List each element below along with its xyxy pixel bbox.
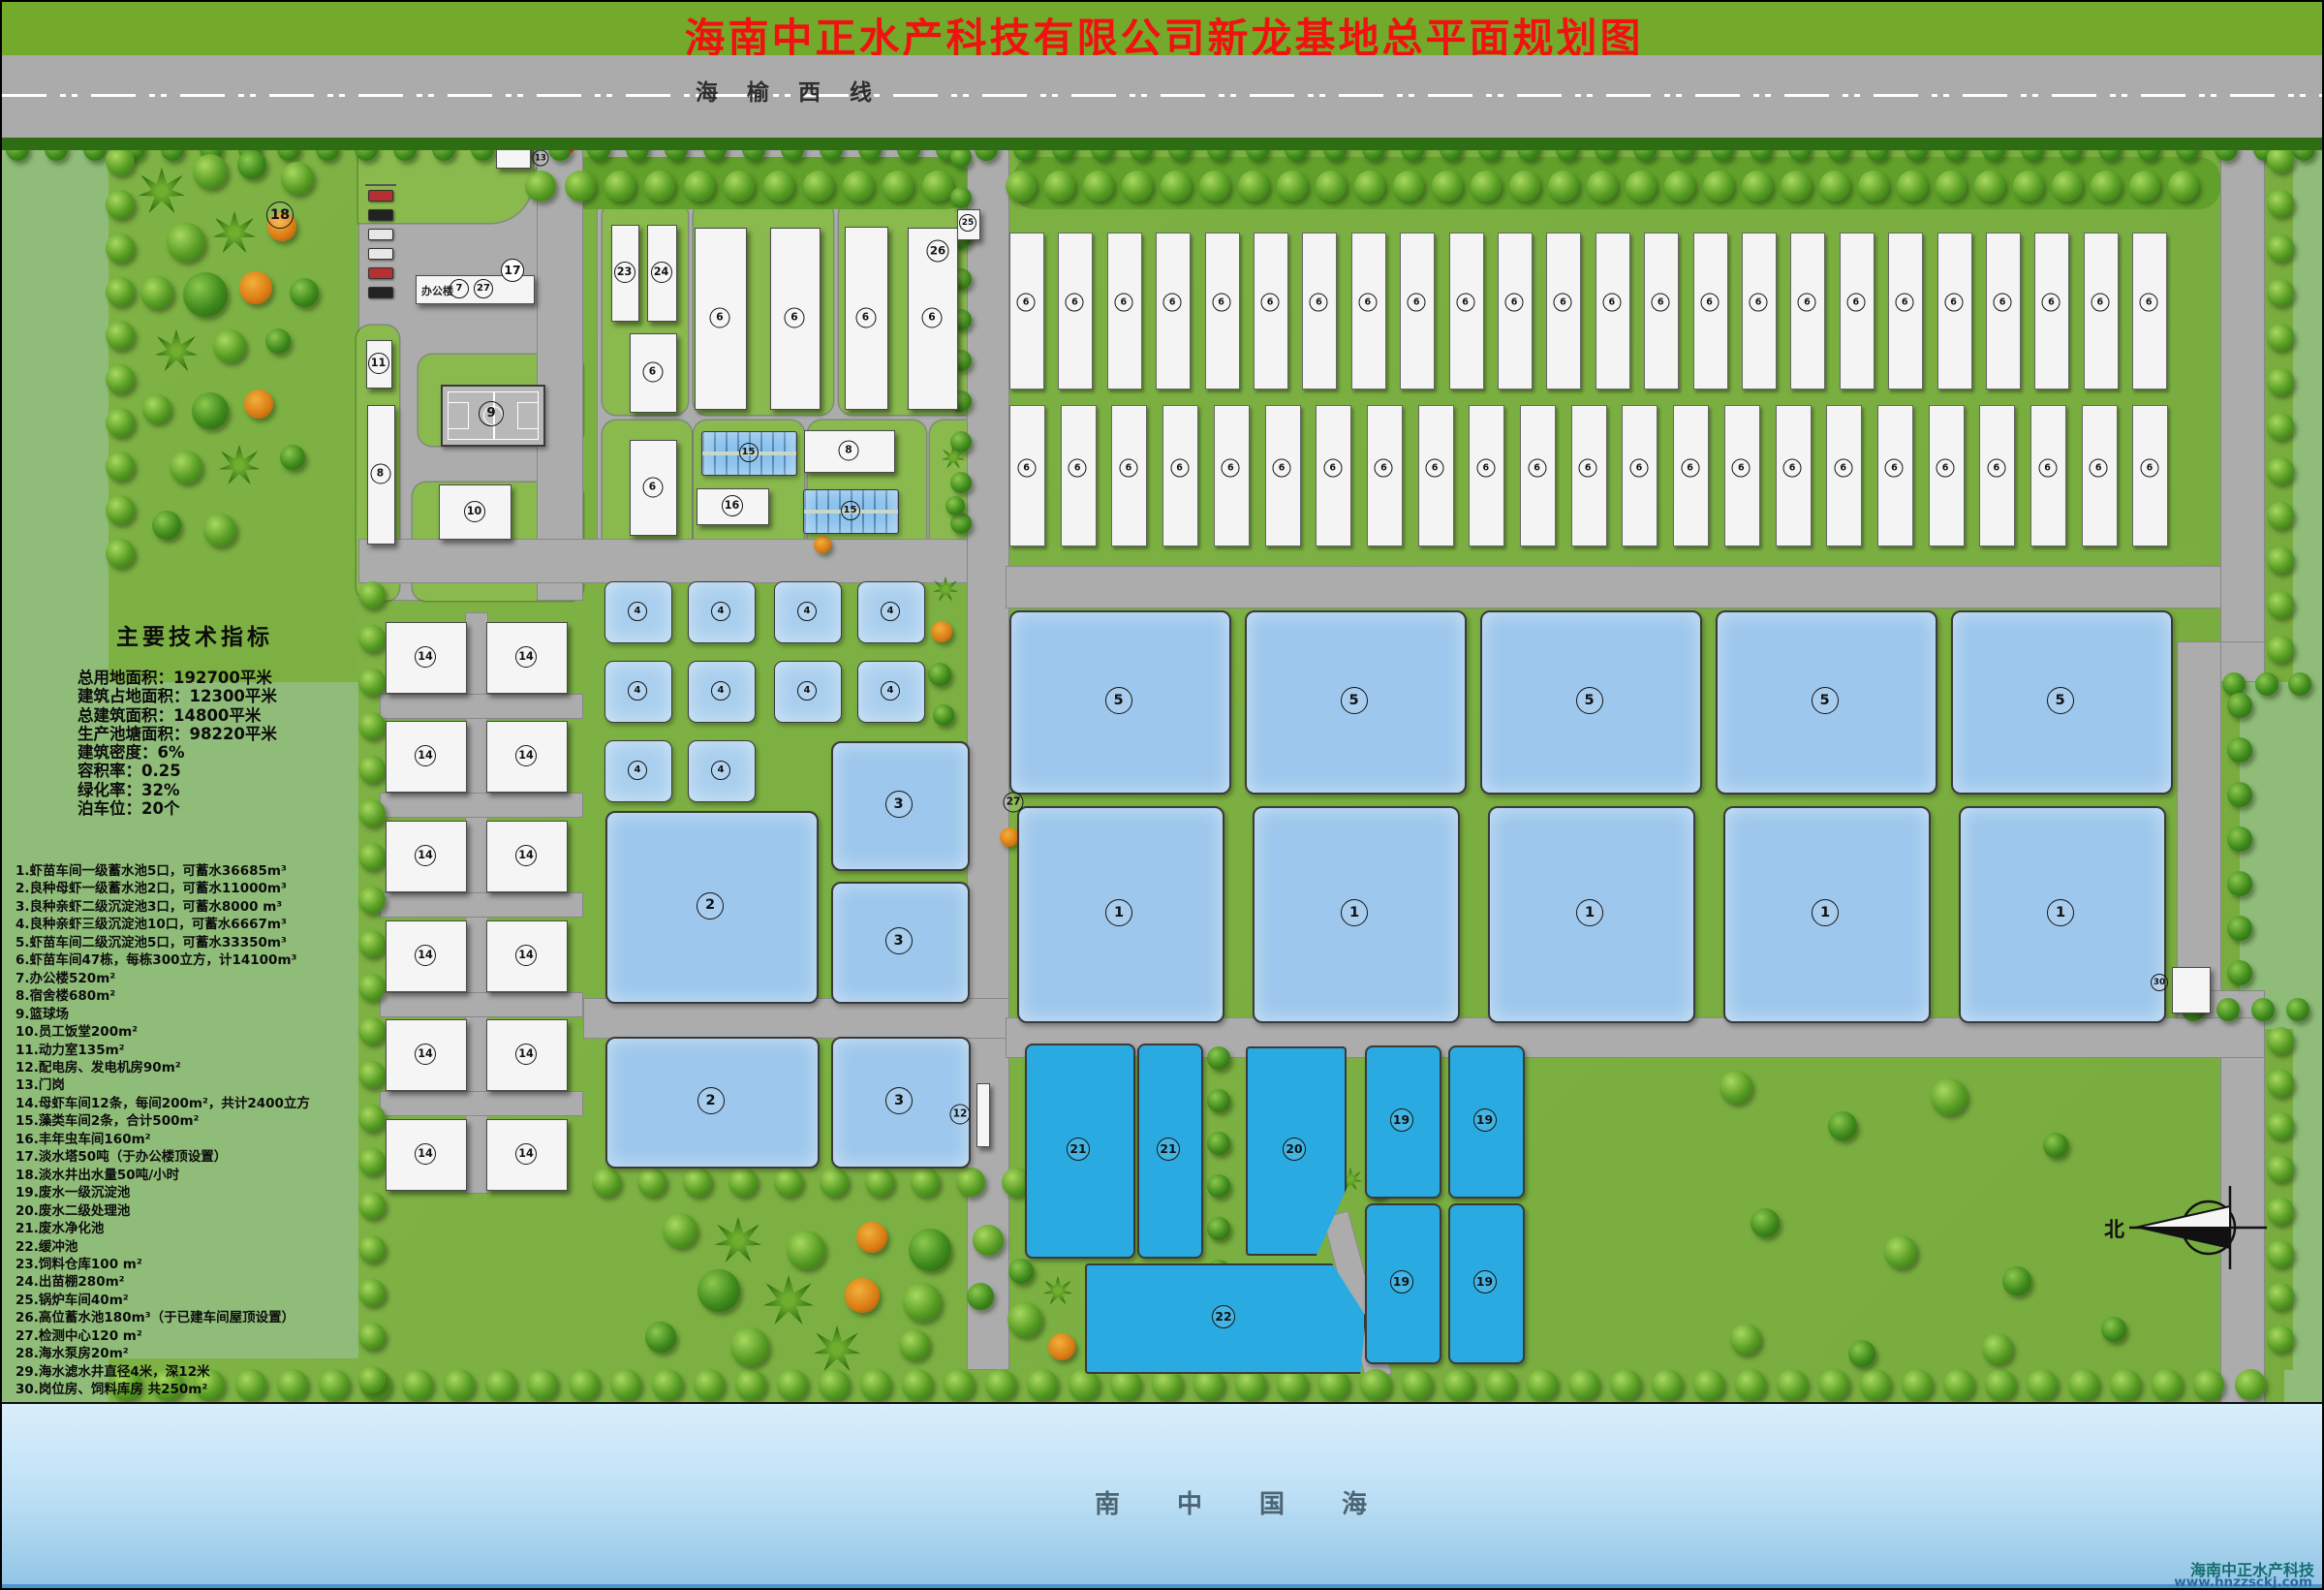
tree-icon — [2052, 171, 2083, 202]
tree-icon — [106, 190, 135, 219]
road-segment — [1006, 566, 2265, 608]
tree-icon — [2267, 234, 2294, 262]
tree-icon — [865, 1168, 894, 1197]
legend-panel: 1.虾苗车间一级蓄水池5口，可蓄水36685m³2.良种母虾一级蓄水池2口，可蓄… — [15, 862, 376, 1399]
legend-item: 17.淡水塔50吨（于办公楼顶设置） — [15, 1148, 376, 1166]
tree-icon — [950, 513, 972, 534]
tree-icon — [1008, 1259, 1034, 1284]
tree-icon — [106, 234, 135, 263]
tree-icon — [2152, 1369, 2183, 1400]
tree-icon — [2227, 737, 2252, 763]
tree-icon — [1044, 171, 1075, 202]
circled-label-16: 16 — [722, 495, 743, 516]
tree-icon — [1161, 171, 1192, 202]
tech-indicator-line: 生产池塘面积：98220平米 — [77, 725, 397, 743]
tree-icon — [106, 321, 135, 350]
tree-icon — [860, 1369, 891, 1400]
tree-icon — [697, 1269, 740, 1312]
road-segment — [380, 992, 583, 1017]
circled-label-4: 4 — [797, 602, 817, 621]
tree-icon — [2267, 636, 2294, 663]
tree-icon — [142, 394, 171, 423]
circled-label-6: 6 — [1426, 458, 1444, 477]
circled-label-6: 6 — [1579, 458, 1597, 477]
tree-icon — [1360, 1369, 1391, 1400]
tree-icon — [1848, 1340, 1875, 1367]
circled-label-4: 4 — [628, 681, 647, 701]
tree-icon — [1943, 1369, 1974, 1400]
circled-label-6: 6 — [1273, 458, 1291, 477]
circled-label-22: 22 — [1212, 1305, 1235, 1328]
tree-icon — [213, 329, 246, 362]
tree-icon — [565, 171, 596, 202]
legend-item: 5.虾苗车间二级沉淀池5口，可蓄水33350m³ — [15, 934, 376, 951]
tree-icon — [1626, 171, 1657, 202]
tree-icon — [2043, 1133, 2068, 1158]
legend-item: 24.出苗棚280m² — [15, 1273, 376, 1291]
tree-icon — [1432, 171, 1463, 202]
tree-icon — [2251, 998, 2275, 1021]
tree-icon — [694, 1369, 725, 1400]
tree-icon — [933, 704, 954, 726]
site-plan-canvas: 5555511111444444444423323151521212019191… — [0, 0, 2324, 1590]
tree-icon — [1936, 171, 1967, 202]
circled-label-1: 1 — [1812, 899, 1839, 926]
tree-icon — [2267, 413, 2294, 440]
tree-icon — [527, 1369, 558, 1400]
car — [368, 190, 393, 202]
legend-item: 19.废水一级沉淀池 — [15, 1184, 376, 1201]
circled-label-9: 9 — [479, 401, 504, 426]
circled-label-6: 6 — [2140, 458, 2158, 477]
tech-indicators-heading: 主要技术指标 — [116, 618, 397, 651]
circled-label-14: 14 — [415, 1143, 436, 1165]
circled-label-13: 13 — [533, 150, 549, 167]
flower-shrub — [814, 536, 831, 553]
circled-label-6: 6 — [1069, 458, 1087, 477]
circled-label-8: 8 — [370, 464, 390, 484]
tree-icon — [903, 1283, 942, 1322]
circled-label-7: 7 — [449, 279, 469, 298]
road-segment — [380, 793, 583, 818]
circled-label-14: 14 — [415, 845, 436, 866]
circled-label-6: 6 — [2091, 294, 2109, 312]
circled-label-6: 6 — [1375, 458, 1393, 477]
car — [368, 248, 393, 260]
tree-icon — [985, 1369, 1016, 1400]
sea-area: 南中国海 海南中正水产科技 www.hnzzsckj.com — [2, 1402, 2324, 1590]
legend-item: 30.岗位房、饲料库房 共250m² — [15, 1381, 376, 1398]
legend-item: 13.门岗 — [15, 1076, 376, 1094]
legend-item: 10.员工饭堂200m² — [15, 1023, 376, 1041]
tree-icon — [2267, 1325, 2294, 1353]
legend-item: 15.藻类车间2条，合计500m² — [15, 1112, 376, 1130]
legend-item: 16.丰年虫车间160m² — [15, 1131, 376, 1148]
circled-label-6: 6 — [1323, 458, 1342, 477]
tree-icon — [820, 1168, 849, 1197]
circled-label-27: 27 — [474, 279, 493, 298]
tree-icon — [203, 514, 236, 546]
tree-icon — [899, 1329, 930, 1360]
tree-icon — [1693, 1369, 1724, 1400]
circled-label-6: 6 — [710, 308, 730, 328]
tree-icon — [922, 171, 953, 202]
road-segment — [380, 694, 583, 719]
tech-indicator-line: 建筑密度：6% — [77, 743, 397, 762]
tree-icon — [2216, 998, 2240, 1021]
circled-label-2: 2 — [697, 892, 724, 920]
tree-icon — [928, 663, 951, 686]
circled-label-14: 14 — [415, 1044, 436, 1065]
circled-label-17: 17 — [501, 259, 524, 282]
tree-icon — [2101, 1317, 2126, 1342]
circled-label-24: 24 — [651, 262, 672, 283]
legend-item: 22.缓冲池 — [15, 1238, 376, 1256]
legend-item: 2.良种母虾一级蓄水池2口，可蓄水11000m³ — [15, 880, 376, 897]
tree-icon — [902, 1369, 933, 1400]
circled-label-6: 6 — [1554, 294, 1572, 312]
tree-icon — [1818, 1369, 1849, 1400]
tree-icon — [787, 1231, 825, 1269]
tree-icon — [1652, 1369, 1683, 1400]
roadside-hedge — [2, 138, 2324, 150]
circled-label-5: 5 — [1812, 687, 1839, 714]
circled-label-19: 19 — [1390, 1108, 1413, 1132]
tree-icon — [1902, 1369, 1933, 1400]
tree-icon — [1527, 1369, 1558, 1400]
tree-icon — [1860, 1369, 1891, 1400]
tree-icon — [2227, 826, 2252, 852]
tech-indicator-line: 绿化率：32% — [77, 781, 397, 799]
tree-icon — [170, 451, 202, 483]
tech-indicator-line: 总用地面积：192700平米 — [77, 669, 397, 687]
circled-label-6: 6 — [1798, 294, 1816, 312]
tree-icon — [2068, 1369, 2099, 1400]
tree-icon — [819, 1369, 850, 1400]
tree-icon — [2013, 171, 2044, 202]
tree-icon — [652, 1369, 683, 1400]
tree-icon — [281, 162, 314, 195]
circled-label-1: 1 — [2047, 899, 2074, 926]
tree-icon — [2267, 591, 2294, 618]
court-key — [517, 402, 539, 429]
tree-icon — [909, 1229, 951, 1271]
circled-label-3: 3 — [885, 791, 913, 818]
circled-label-25: 25 — [959, 214, 976, 232]
legend-item: 23.饲料仓库100 m² — [15, 1256, 376, 1273]
tree-icon — [1485, 1369, 1516, 1400]
tree-icon — [525, 171, 556, 202]
tree-icon — [183, 272, 228, 317]
tree-icon — [967, 1283, 994, 1310]
legend-item: 9.篮球场 — [15, 1006, 376, 1023]
circled-label-6: 6 — [1066, 294, 1084, 312]
tree-icon — [730, 1327, 769, 1366]
court-key — [448, 402, 469, 429]
tree-icon — [1568, 1369, 1599, 1400]
circled-label-6: 6 — [1408, 294, 1426, 312]
legend-item: 4.良种亲虾三级沉淀池10口，可蓄水6667m³ — [15, 916, 376, 933]
tree-icon — [1027, 1369, 1058, 1400]
tree-icon — [1985, 1369, 2016, 1400]
tree-icon — [106, 495, 135, 524]
circled-label-19: 19 — [1473, 1270, 1497, 1294]
tree-icon — [280, 445, 305, 470]
circled-label-19: 19 — [1390, 1270, 1413, 1294]
building — [2172, 967, 2211, 1013]
legend-item: 3.良种亲虾二级沉淀池3口，可蓄水8000 m³ — [15, 898, 376, 916]
tree-icon — [803, 171, 834, 202]
tree-icon — [728, 1168, 758, 1197]
tree-icon — [1509, 171, 1540, 202]
tree-icon — [2288, 672, 2311, 696]
tree-icon — [735, 1369, 766, 1400]
parking-strip — [365, 184, 396, 186]
circled-label-11: 11 — [368, 353, 389, 374]
tree-icon — [1720, 1071, 1752, 1104]
legend-item: 18.淡水井出水量50吨/小时 — [15, 1167, 376, 1184]
sea-deep-band — [2, 1584, 2324, 1590]
circled-label-3: 3 — [885, 1087, 913, 1114]
circled-label-4: 4 — [711, 761, 730, 780]
legend-item: 8.宿舍楼680m² — [15, 987, 376, 1005]
circled-label-6: 6 — [785, 308, 805, 328]
tree-icon — [1402, 1369, 1433, 1400]
tech-indicators-panel: 主要技术指标 总用地面积：192700平米建筑占地面积：12300平米总建筑面积… — [77, 618, 397, 818]
circled-label-6: 6 — [1261, 294, 1280, 312]
road-segment — [583, 998, 1009, 1039]
tree-icon — [1316, 171, 1347, 202]
tree-icon — [1664, 171, 1695, 202]
circled-label-2: 2 — [697, 1087, 725, 1114]
tree-icon — [1982, 1333, 2013, 1364]
tree-icon — [1207, 1132, 1230, 1155]
flower-shrub — [856, 1222, 887, 1253]
tech-indicator-line: 建筑占地面积：12300平米 — [77, 687, 397, 705]
car — [368, 209, 393, 221]
circled-label-6: 6 — [855, 307, 876, 327]
circled-label-6: 6 — [1750, 294, 1768, 312]
circled-label-6: 6 — [1994, 294, 2012, 312]
circled-label-21: 21 — [1157, 1138, 1180, 1161]
tree-icon — [1751, 1208, 1780, 1237]
car — [368, 267, 393, 279]
circled-label-21: 21 — [1067, 1138, 1090, 1161]
tech-indicator-line: 总建筑面积：14800平米 — [77, 706, 397, 725]
road-name: 海榆西线 — [696, 74, 901, 107]
road-segment — [2220, 138, 2265, 682]
tree-icon — [1777, 1369, 1808, 1400]
tree-icon — [2193, 1369, 2224, 1400]
tree-icon — [956, 1168, 985, 1197]
tree-icon — [1471, 171, 1502, 202]
watermark-url: www.hnzzsckj.com — [2174, 1574, 2312, 1590]
legend-item: 25.锅炉车间40m² — [15, 1292, 376, 1309]
legend-item: 28.海水泵房20m² — [15, 1345, 376, 1362]
tree-icon — [2267, 368, 2294, 395]
circled-label-18: 18 — [266, 202, 294, 229]
circled-label-5: 5 — [1341, 687, 1368, 714]
tree-icon — [106, 539, 135, 568]
circled-label-6: 6 — [1505, 294, 1524, 312]
circled-label-1: 1 — [1341, 899, 1368, 926]
road-segment — [380, 892, 583, 918]
legend-item: 6.虾苗车间47栋，每栋300立方，计14100m³ — [15, 951, 376, 969]
tree-icon — [485, 1369, 516, 1400]
tree-icon — [2235, 1369, 2266, 1400]
tree-icon — [2267, 546, 2294, 574]
tree-icon — [2267, 1070, 2294, 1097]
circled-label-6: 6 — [1602, 294, 1621, 312]
circled-label-14: 14 — [515, 1143, 537, 1165]
circled-label-4: 4 — [797, 681, 817, 701]
tree-icon — [1122, 171, 1153, 202]
tree-icon — [1199, 171, 1230, 202]
tree-icon — [444, 1369, 475, 1400]
flower-shrub — [1000, 827, 1019, 847]
tree-icon — [763, 171, 794, 202]
tree-icon — [2002, 1266, 2031, 1295]
circled-label-6: 6 — [1783, 458, 1802, 477]
tree-icon — [2267, 1283, 2294, 1310]
tree-icon — [637, 1168, 666, 1197]
circled-label-6: 6 — [1700, 294, 1719, 312]
tree-icon — [1587, 171, 1618, 202]
tree-icon — [1207, 1174, 1230, 1198]
tree-icon — [358, 581, 386, 608]
sea-name: 南中国海 — [1095, 1484, 1424, 1520]
circled-label-6: 6 — [1652, 294, 1670, 312]
tree-icon — [106, 452, 135, 481]
tree-icon — [2267, 190, 2294, 217]
tree-icon — [663, 1213, 697, 1248]
circled-label-14: 14 — [515, 845, 537, 866]
highway-haiyu-west: 海榆西线 — [2, 55, 2324, 140]
flower-shrub — [931, 621, 952, 642]
tree-icon — [645, 1322, 676, 1353]
road-segment — [358, 539, 1009, 583]
circled-label-6: 6 — [1987, 458, 2005, 477]
circled-label-26: 26 — [927, 240, 949, 263]
tree-icon — [106, 277, 135, 306]
tree-icon — [1931, 1078, 1968, 1115]
tree-icon — [1610, 1369, 1641, 1400]
tree-icon — [402, 1369, 433, 1400]
tree-icon — [1354, 171, 1385, 202]
tree-icon — [2110, 1369, 2141, 1400]
legend-item: 11.动力室135m² — [15, 1042, 376, 1059]
tree-icon — [1730, 1324, 1761, 1355]
tree-icon — [1819, 171, 1850, 202]
title-banner: 海南中正水产科技有限公司新龙基地总平面规划图 — [2, 2, 2324, 57]
tree-icon — [1703, 171, 1734, 202]
circled-label-1: 1 — [1576, 899, 1603, 926]
tree-icon — [843, 171, 874, 202]
circled-label-6: 6 — [1017, 294, 1036, 312]
legend-item: 20.废水二级处理池 — [15, 1202, 376, 1220]
car — [368, 287, 393, 298]
road-segment — [380, 1091, 583, 1116]
circled-label-4: 4 — [881, 602, 900, 621]
circled-label-15: 15 — [739, 443, 759, 462]
circled-label-30: 30 — [2151, 974, 2168, 991]
tree-icon — [2267, 457, 2294, 484]
tree-icon — [1742, 171, 1773, 202]
circled-label-14: 14 — [515, 646, 537, 668]
tree-icon — [1207, 1046, 1230, 1070]
building — [496, 147, 531, 169]
tree-icon — [911, 1168, 940, 1197]
road-center-dashes — [2, 94, 2324, 97]
circled-label-6: 6 — [2090, 458, 2108, 477]
circled-label-4: 4 — [628, 761, 647, 780]
tree-icon — [610, 1369, 641, 1400]
tree-icon — [2027, 1369, 2058, 1400]
tree-icon — [777, 1369, 808, 1400]
circled-label-6: 6 — [1944, 294, 1963, 312]
tech-indicator-line: 泊车位：20个 — [77, 799, 397, 818]
circled-label-5: 5 — [1105, 687, 1132, 714]
circled-label-14: 14 — [415, 646, 436, 668]
circled-label-6: 6 — [1358, 294, 1377, 312]
tree-icon — [2168, 171, 2199, 202]
circled-label-14: 14 — [515, 745, 537, 766]
tree-icon — [192, 392, 229, 429]
tree-icon — [1735, 1369, 1766, 1400]
tree-icon — [1781, 171, 1812, 202]
circled-label-6: 6 — [1310, 294, 1328, 312]
tree-icon — [973, 1225, 1004, 1256]
circled-label-6: 6 — [1834, 458, 1852, 477]
tree-icon — [2267, 1112, 2294, 1139]
circled-label-14: 14 — [415, 745, 436, 766]
tree-icon — [106, 408, 135, 437]
circled-label-6: 6 — [1212, 294, 1230, 312]
tree-icon — [1207, 1217, 1230, 1240]
circled-label-10: 10 — [464, 501, 485, 522]
circled-label-6: 6 — [1732, 458, 1751, 477]
tree-icon — [774, 1168, 803, 1197]
tree-icon — [1548, 171, 1579, 202]
tree-icon — [290, 278, 319, 307]
tree-icon — [1884, 1235, 1917, 1268]
circled-label-6: 6 — [2140, 294, 2158, 312]
legend-item: 29.海水滤水井直径4米，深12米 — [15, 1363, 376, 1381]
compass-north-label: 北 — [2104, 1218, 2124, 1241]
legend-item: 14.母虾车间12条，每间200m²，共计2400立方 — [15, 1095, 376, 1112]
building — [976, 1083, 990, 1147]
tree-icon — [2267, 324, 2294, 351]
circled-label-6: 6 — [1846, 294, 1865, 312]
circled-label-12: 12 — [950, 1105, 971, 1125]
tree-icon — [1443, 1369, 1474, 1400]
tree-icon — [2267, 502, 2294, 529]
tree-icon — [592, 1168, 621, 1197]
tree-icon — [2091, 171, 2122, 202]
legend-item: 1.虾苗车间一级蓄水池5口，可蓄水36685m³ — [15, 862, 376, 880]
flower-shrub — [239, 271, 272, 304]
circled-label-4: 4 — [881, 681, 900, 701]
circled-label-14: 14 — [515, 1044, 537, 1065]
circled-label-6: 6 — [2038, 458, 2057, 477]
circled-label-6: 6 — [1017, 458, 1036, 477]
circled-label-27: 27 — [1004, 793, 1024, 813]
circled-label-6: 6 — [1476, 458, 1495, 477]
tree-icon — [883, 171, 914, 202]
tree-icon — [1277, 171, 1308, 202]
circled-label-6: 6 — [1119, 458, 1137, 477]
car — [368, 229, 393, 240]
